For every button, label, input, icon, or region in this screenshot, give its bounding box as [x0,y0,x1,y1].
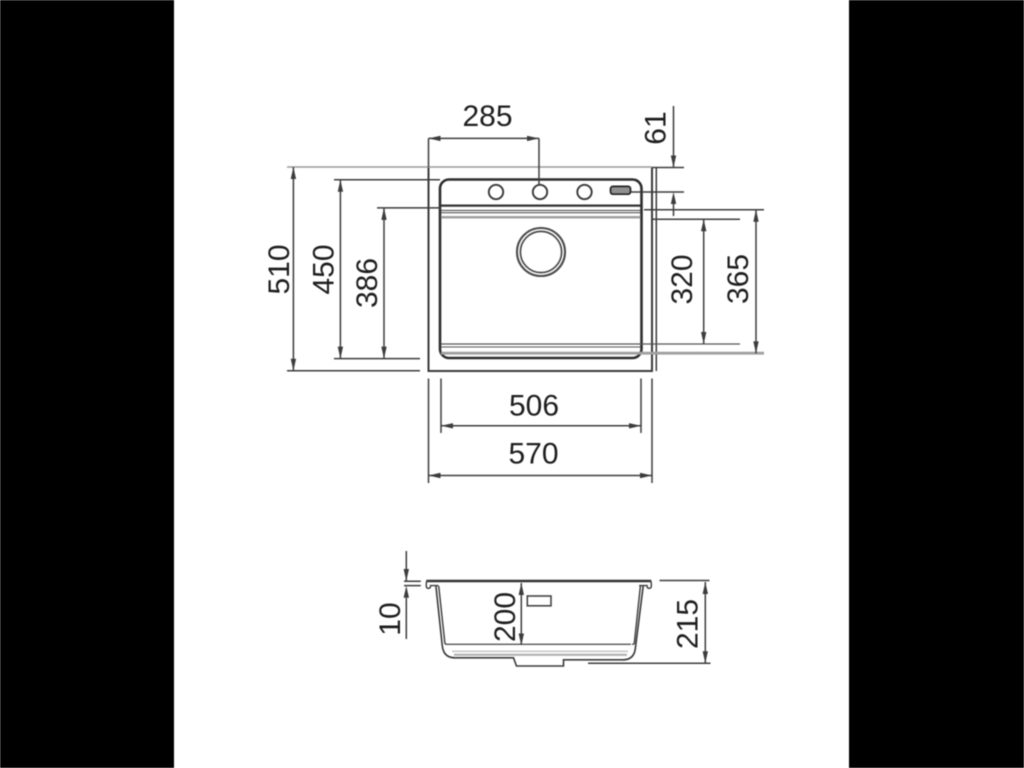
svg-text:450: 450 [308,244,341,294]
svg-text:215: 215 [672,599,705,649]
svg-text:365: 365 [722,254,755,304]
svg-text:200: 200 [489,592,522,642]
svg-text:10: 10 [374,602,407,635]
svg-text:570: 570 [508,438,558,471]
svg-text:320: 320 [666,254,699,304]
svg-text:386: 386 [351,258,384,308]
svg-text:285: 285 [462,100,512,133]
svg-text:510: 510 [263,244,296,294]
svg-text:61: 61 [640,111,673,144]
svg-text:506: 506 [509,390,559,423]
